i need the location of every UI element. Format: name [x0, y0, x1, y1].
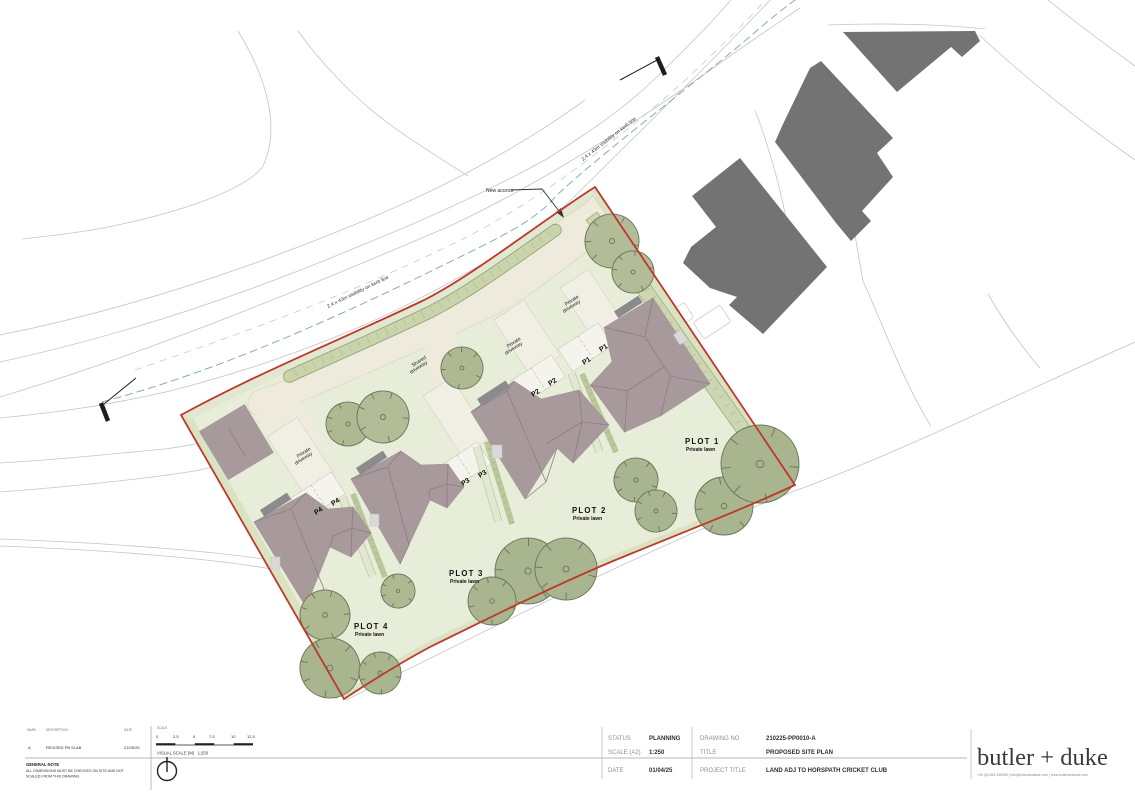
svg-text:butler + duke: butler + duke [977, 744, 1108, 771]
svg-text:GENERAL NOTE: GENERAL NOTE [26, 762, 59, 767]
svg-text:PLOT 2: PLOT 2 [572, 506, 607, 515]
svg-text:LAND ADJ TO HORSPATH CRICKET C: LAND ADJ TO HORSPATH CRICKET CLUB [766, 768, 888, 774]
svg-text:REVISED PB SLAB: REVISED PB SLAB [46, 745, 82, 750]
svg-text:PLANNING: PLANNING [649, 736, 681, 742]
svg-text:PLOT 4: PLOT 4 [354, 622, 389, 631]
svg-text:SCALED FROM THIS DRAWING: SCALED FROM THIS DRAWING [26, 775, 80, 779]
svg-text:1:250: 1:250 [649, 750, 665, 756]
svg-text:PROJECT TITLE: PROJECT TITLE [700, 768, 746, 774]
svg-text:10: 10 [231, 734, 236, 739]
svg-text:SCALE (A2): SCALE (A2) [608, 750, 641, 756]
svg-text:PLOT 3: PLOT 3 [449, 569, 484, 578]
svg-text:DESCRIPTION: DESCRIPTION [46, 728, 68, 732]
svg-text:New access: New access [486, 188, 513, 194]
svg-text:PLOT 1: PLOT 1 [685, 437, 720, 446]
svg-text:DATE: DATE [124, 728, 132, 732]
svg-text:ALL DIMENSIONS MUST BE CHECKED: ALL DIMENSIONS MUST BE CHECKED ON SITE A… [26, 769, 125, 773]
svg-text:TITLE: TITLE [700, 750, 716, 756]
svg-text:210225-PP0010-A: 210225-PP0010-A [766, 736, 816, 742]
svg-text:+44 (0)1865 338395 | info@b: +44 (0)1865 338395 | info@butlerandduke.… [977, 773, 1088, 777]
svg-text:DRAWING NO: DRAWING NO [700, 736, 740, 742]
svg-text:DATE: DATE [608, 768, 624, 774]
svg-text:Private lawn: Private lawn [573, 516, 602, 522]
svg-text:21/05/25: 21/05/25 [124, 745, 140, 750]
svg-text:7.5: 7.5 [209, 734, 215, 739]
svg-text:12.5: 12.5 [247, 734, 256, 739]
svg-text:VISUAL SCALE (M) 1:250: VISUAL SCALE (M) 1:250 [157, 751, 209, 756]
svg-text:Private lawn: Private lawn [686, 447, 715, 453]
svg-text:2.5: 2.5 [173, 734, 179, 739]
svg-text:Private lawn: Private lawn [450, 579, 479, 585]
svg-text:01/04/25: 01/04/25 [649, 768, 673, 774]
svg-text:MARK: MARK [27, 728, 37, 732]
svg-text:STATUS: STATUS [608, 736, 631, 742]
svg-text:SCALE: SCALE [157, 726, 167, 730]
svg-text:PROPOSED SITE PLAN: PROPOSED SITE PLAN [766, 750, 833, 756]
svg-text:Private lawn: Private lawn [355, 632, 384, 638]
svg-text:A: A [28, 745, 31, 750]
